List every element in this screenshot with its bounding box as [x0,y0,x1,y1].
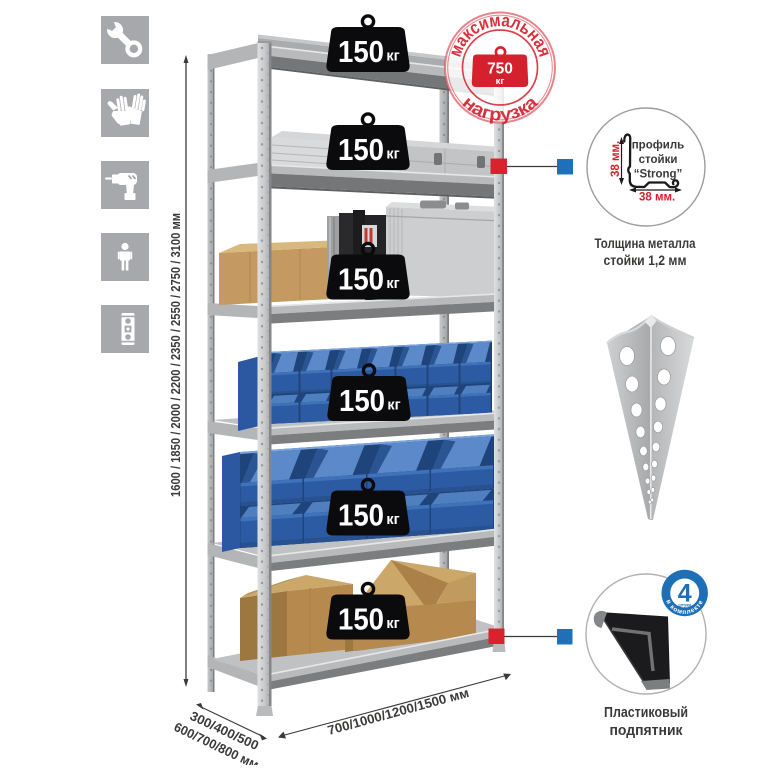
svg-text:“Strong”: “Strong” [634,169,683,181]
svg-text:38 мм.: 38 мм. [639,192,675,204]
svg-text:38 мм.: 38 мм. [610,141,622,177]
svg-text:профиль: профиль [632,140,685,152]
svg-text:штуки: штуки [678,603,691,608]
svg-text:700/1000/1200/1500 мм: 700/1000/1200/1500 мм [326,685,471,738]
svg-text:750: 750 [487,61,513,78]
svg-text:кг: кг [496,76,505,87]
svg-text:подпятник: подпятник [610,722,683,739]
svg-text:стойки 1,2 мм: стойки 1,2 мм [604,252,687,268]
svg-text:стойки: стойки [639,154,678,166]
svg-text:Пластиковый: Пластиковый [604,704,688,721]
svg-text:1600 / 1850 / 2000 / 2200 / 23: 1600 / 1850 / 2000 / 2200 / 2350 / 2550 … [168,213,183,497]
svg-text:Толщина металла: Толщина металла [595,235,696,251]
